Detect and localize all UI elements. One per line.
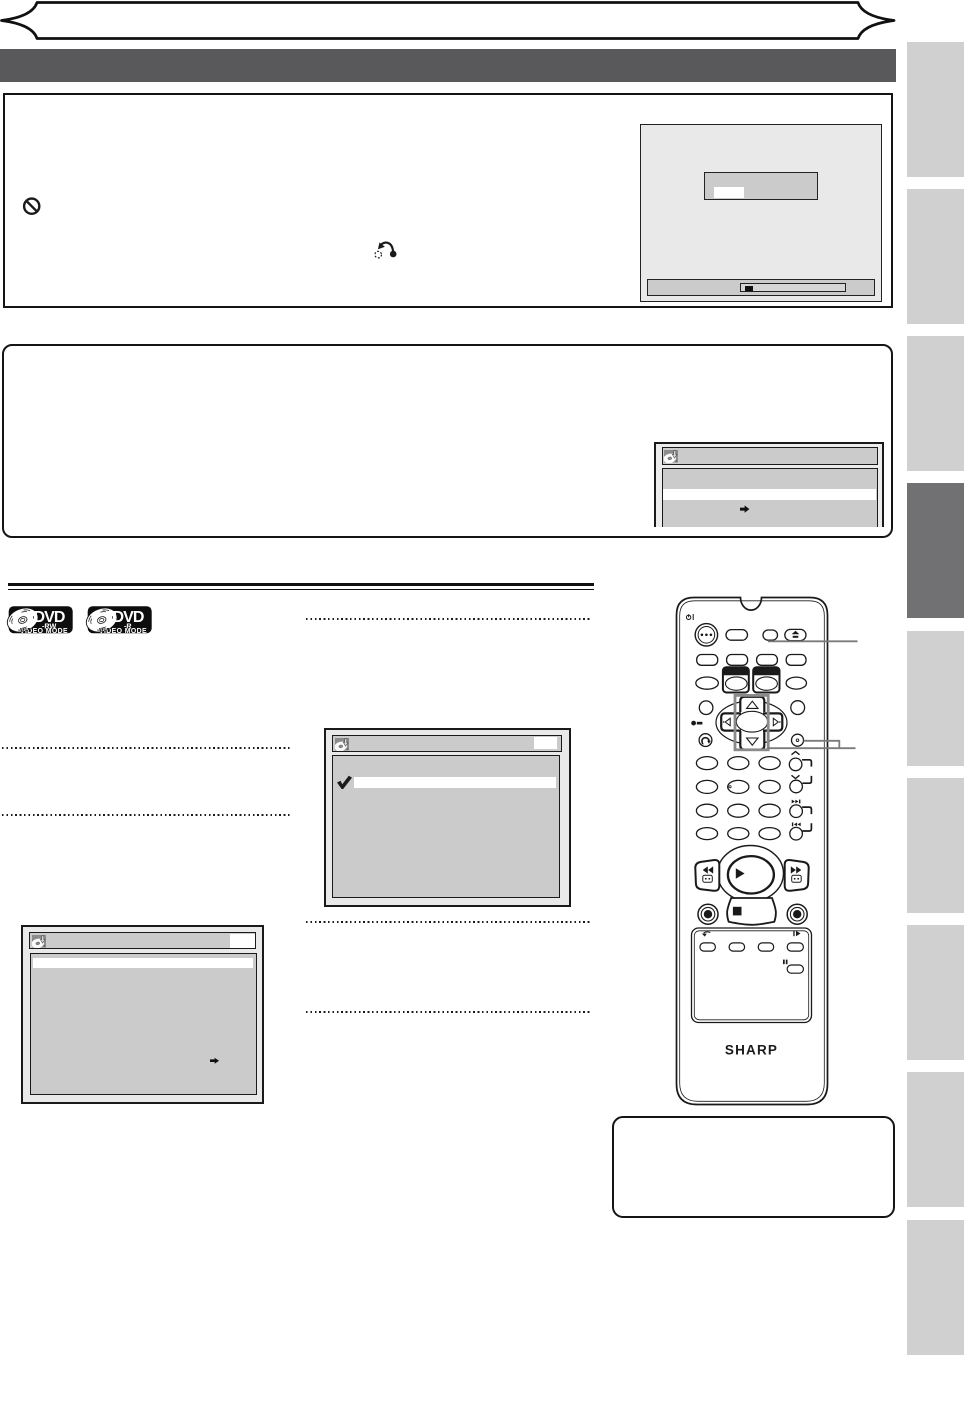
svg-text:SHARP: SHARP	[725, 1043, 778, 1058]
